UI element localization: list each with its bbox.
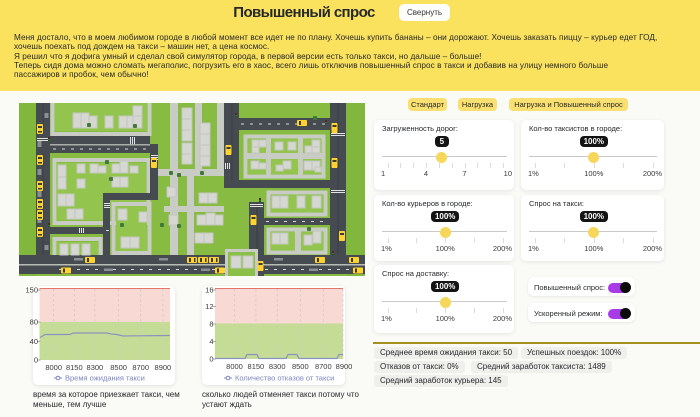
svg-text:150: 150 bbox=[25, 286, 38, 295]
svg-text:8300: 8300 bbox=[87, 363, 104, 372]
svg-text:4: 4 bbox=[209, 337, 213, 346]
svg-text:40: 40 bbox=[30, 337, 38, 346]
svg-text:8150: 8150 bbox=[66, 363, 83, 372]
svg-text:0: 0 bbox=[34, 356, 38, 365]
svg-text:8150: 8150 bbox=[248, 362, 265, 371]
svg-text:8700: 8700 bbox=[315, 362, 332, 371]
svg-text:Время ожидания такси: Время ожидания такси bbox=[65, 374, 145, 383]
svg-text:Количество отказов от такси: Количество отказов от такси bbox=[235, 374, 334, 383]
svg-text:8000: 8000 bbox=[226, 362, 243, 371]
svg-text:80: 80 bbox=[30, 318, 38, 327]
svg-text:8300: 8300 bbox=[269, 362, 286, 371]
svg-text:8500: 8500 bbox=[292, 362, 309, 371]
svg-text:12: 12 bbox=[205, 302, 213, 311]
svg-text:8: 8 bbox=[209, 320, 213, 329]
svg-text:8700: 8700 bbox=[132, 363, 149, 372]
svg-text:16: 16 bbox=[205, 286, 213, 295]
svg-text:8900: 8900 bbox=[155, 363, 172, 372]
svg-text:8000: 8000 bbox=[45, 363, 62, 372]
svg-text:0: 0 bbox=[209, 355, 213, 364]
svg-text:8500: 8500 bbox=[110, 363, 127, 372]
svg-text:8900: 8900 bbox=[336, 362, 353, 371]
